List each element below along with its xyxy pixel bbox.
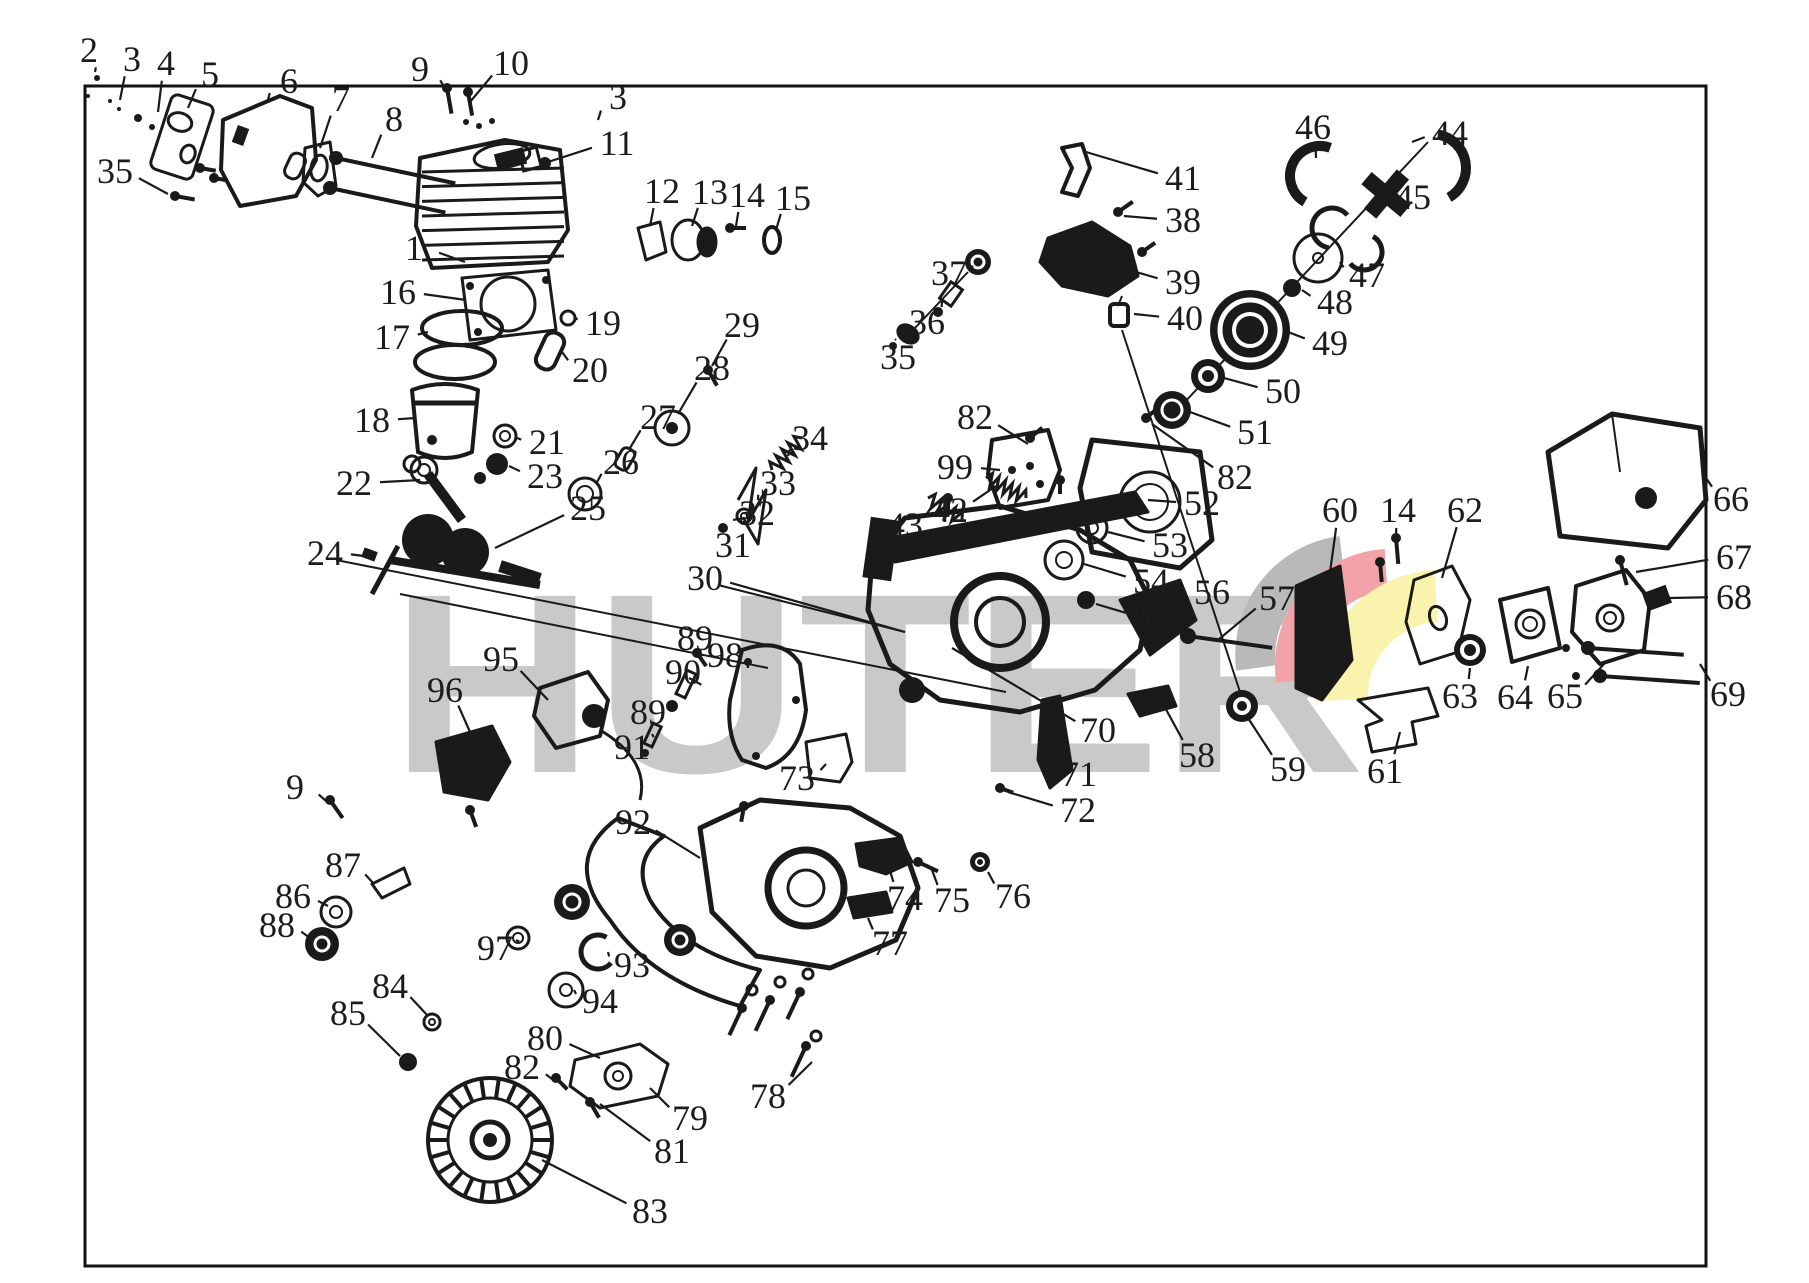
leader-line-84: [410, 997, 428, 1016]
part-label-51: 51: [1237, 412, 1273, 452]
part-label-44: 44: [1432, 113, 1468, 153]
leader-line-67: [1636, 560, 1708, 572]
part-label-75: 75: [934, 880, 970, 920]
part-label-76: 76: [995, 876, 1031, 916]
leader-line-38: [1124, 216, 1157, 219]
part-label-23: 23: [527, 456, 563, 496]
part-label-5: 5: [201, 54, 219, 94]
leader-line-51: [1190, 412, 1230, 427]
leader-line-22: [380, 480, 420, 482]
part-label-87: 87: [325, 845, 361, 885]
leader-line-53: [1108, 532, 1145, 541]
part-label-14: 14: [729, 175, 765, 215]
part-label-70: 70: [1080, 710, 1116, 750]
part-label-40: 40: [1167, 298, 1203, 338]
part-label-43: 43: [887, 505, 923, 545]
diagram-page: HUTER 2345678910311351213141511617192018…: [0, 0, 1809, 1283]
leader-line-21: [517, 438, 521, 440]
part-label-54: 54: [1133, 561, 1169, 601]
leader-line-50: [1224, 378, 1258, 387]
leader-line-87: [365, 874, 374, 884]
part-label-16: 16: [380, 272, 416, 312]
part-label-69: 69: [1710, 674, 1746, 714]
leader-line-42: [973, 486, 996, 502]
part-label-2: 2: [80, 30, 98, 70]
part-label-12: 12: [644, 171, 680, 211]
part-label-63: 63: [1442, 676, 1478, 716]
part-label-66: 66: [1713, 479, 1749, 519]
part-label-11: 11: [600, 123, 635, 163]
leader-line-52: [1148, 500, 1176, 502]
leader-line-80: [569, 1044, 600, 1058]
part-label-53: 53: [1152, 525, 1188, 565]
part-label-64: 64: [1497, 677, 1533, 717]
leader-line-93: [608, 952, 609, 956]
leader-line-92: [656, 831, 700, 858]
part-label-47: 47: [1349, 255, 1385, 295]
part-label-57: 57: [1259, 578, 1295, 618]
part-label-98: 98: [707, 635, 743, 675]
part-label-58: 58: [1179, 735, 1215, 775]
part-label-13: 13: [692, 172, 728, 212]
part-label-42: 42: [932, 490, 968, 530]
leader-line-37: [968, 266, 973, 267]
part-label-99: 99: [937, 447, 973, 487]
part-label-97: 97: [477, 928, 513, 968]
part-label-82: 82: [1217, 457, 1253, 497]
part-label-14: 14: [1380, 490, 1416, 530]
part-label-90: 90: [665, 652, 701, 692]
part-label-88: 88: [259, 905, 295, 945]
leader-line-20: [562, 352, 568, 360]
part-label-89: 89: [630, 692, 666, 732]
leader-line-26: [596, 474, 601, 484]
part-label-1: 1: [405, 228, 423, 268]
leader-line-81: [600, 1104, 650, 1141]
part-label-67: 67: [1716, 537, 1752, 577]
part-label-91: 91: [614, 727, 650, 767]
part-label-56: 56: [1194, 572, 1230, 612]
part-label-52: 52: [1184, 483, 1220, 523]
part-label-18: 18: [354, 400, 390, 440]
part-label-3: 3: [609, 77, 627, 117]
part-label-95: 95: [483, 639, 519, 679]
part-label-48: 48: [1317, 282, 1353, 322]
part-label-83: 83: [632, 1191, 668, 1231]
leader-line-35: [139, 178, 168, 194]
part-label-26: 26: [603, 442, 639, 482]
leader-line-49: [1288, 332, 1305, 338]
part-label-7: 7: [332, 79, 350, 119]
part-label-8: 8: [385, 99, 403, 139]
leader-line-8: [372, 135, 381, 158]
part-label-55: 55: [1133, 597, 1169, 637]
part-label-96: 96: [427, 670, 463, 710]
part-label-77: 77: [872, 923, 908, 963]
leader-line-34: [788, 449, 790, 456]
part-label-24: 24: [307, 533, 343, 573]
part-label-94: 94: [582, 981, 618, 1021]
part-label-29: 29: [724, 305, 760, 345]
leader-line-41: [1086, 152, 1158, 173]
part-label-25: 25: [570, 488, 606, 528]
part-label-3: 3: [123, 39, 141, 79]
part-label-46: 46: [1295, 107, 1331, 147]
part-label-17: 17: [374, 317, 410, 357]
part-label-6: 6: [280, 61, 298, 101]
part-label-60: 60: [1322, 490, 1358, 530]
leader-line-10: [470, 75, 492, 102]
part-label-39: 39: [1165, 262, 1201, 302]
part-label-59: 59: [1270, 749, 1306, 789]
logo-arc-yellow: [1342, 596, 1436, 700]
leader-line-23: [509, 466, 520, 471]
exploded-parts-diagram: HUTER 2345678910311351213141511617192018…: [0, 0, 1809, 1283]
part-label-9: 9: [411, 49, 429, 89]
part-label-84: 84: [372, 966, 408, 1006]
leader-line-3: [598, 111, 601, 120]
leader-line-99: [981, 468, 1000, 470]
part-label-68: 68: [1716, 577, 1752, 617]
part-label-10: 10: [493, 43, 529, 83]
leader-line-68: [1670, 597, 1708, 598]
part-label-19: 19: [585, 303, 621, 343]
part-label-30: 30: [687, 558, 723, 598]
part-label-71: 71: [1061, 754, 1097, 794]
part-label-27: 27: [640, 397, 676, 437]
part-label-41: 41: [1165, 158, 1201, 198]
leader-line-91: [652, 734, 654, 737]
part-label-34: 34: [792, 418, 828, 458]
leader-line-16: [424, 294, 466, 300]
part-label-93: 93: [614, 945, 650, 985]
part-label-28: 28: [694, 348, 730, 388]
part-label-22: 22: [336, 463, 372, 503]
part-label-85: 85: [330, 993, 366, 1033]
part-label-73: 73: [779, 758, 815, 798]
leader-line-89: [668, 706, 673, 707]
leader-line-40: [1134, 314, 1159, 317]
leader-line-9: [319, 794, 326, 801]
leader-line-85: [368, 1024, 400, 1056]
leader-line-3: [120, 76, 125, 100]
part-label-92: 92: [615, 802, 651, 842]
part-label-72: 72: [1060, 790, 1096, 830]
part-label-50: 50: [1265, 371, 1301, 411]
part-label-15: 15: [775, 178, 811, 218]
leader-line-48: [1302, 290, 1311, 296]
part-label-82: 82: [504, 1047, 540, 1087]
leader-line-19: [576, 318, 577, 320]
leader-line-94: [574, 990, 576, 994]
part-label-9: 9: [286, 767, 304, 807]
part-label-20: 20: [572, 350, 608, 390]
part-label-36: 36: [909, 302, 945, 342]
part-label-62: 62: [1447, 490, 1483, 530]
part-label-4: 4: [157, 43, 175, 83]
leader-line-44: [1412, 137, 1425, 142]
part-label-35: 35: [97, 151, 133, 191]
part-label-35: 35: [880, 337, 916, 377]
part-label-65: 65: [1547, 676, 1583, 716]
part-label-74: 74: [887, 878, 923, 918]
part-label-37: 37: [931, 253, 967, 293]
part-label-38: 38: [1165, 200, 1201, 240]
part-label-82: 82: [957, 397, 993, 437]
leader-line-97: [516, 940, 519, 942]
part-label-61: 61: [1367, 751, 1403, 791]
part-label-49: 49: [1312, 323, 1348, 363]
leader-line-76: [988, 872, 994, 884]
leader-line-18: [398, 418, 416, 419]
part-label-78: 78: [750, 1076, 786, 1116]
part-label-79: 79: [672, 1098, 708, 1138]
part-label-45: 45: [1395, 177, 1431, 217]
leader-line-83: [542, 1160, 626, 1203]
